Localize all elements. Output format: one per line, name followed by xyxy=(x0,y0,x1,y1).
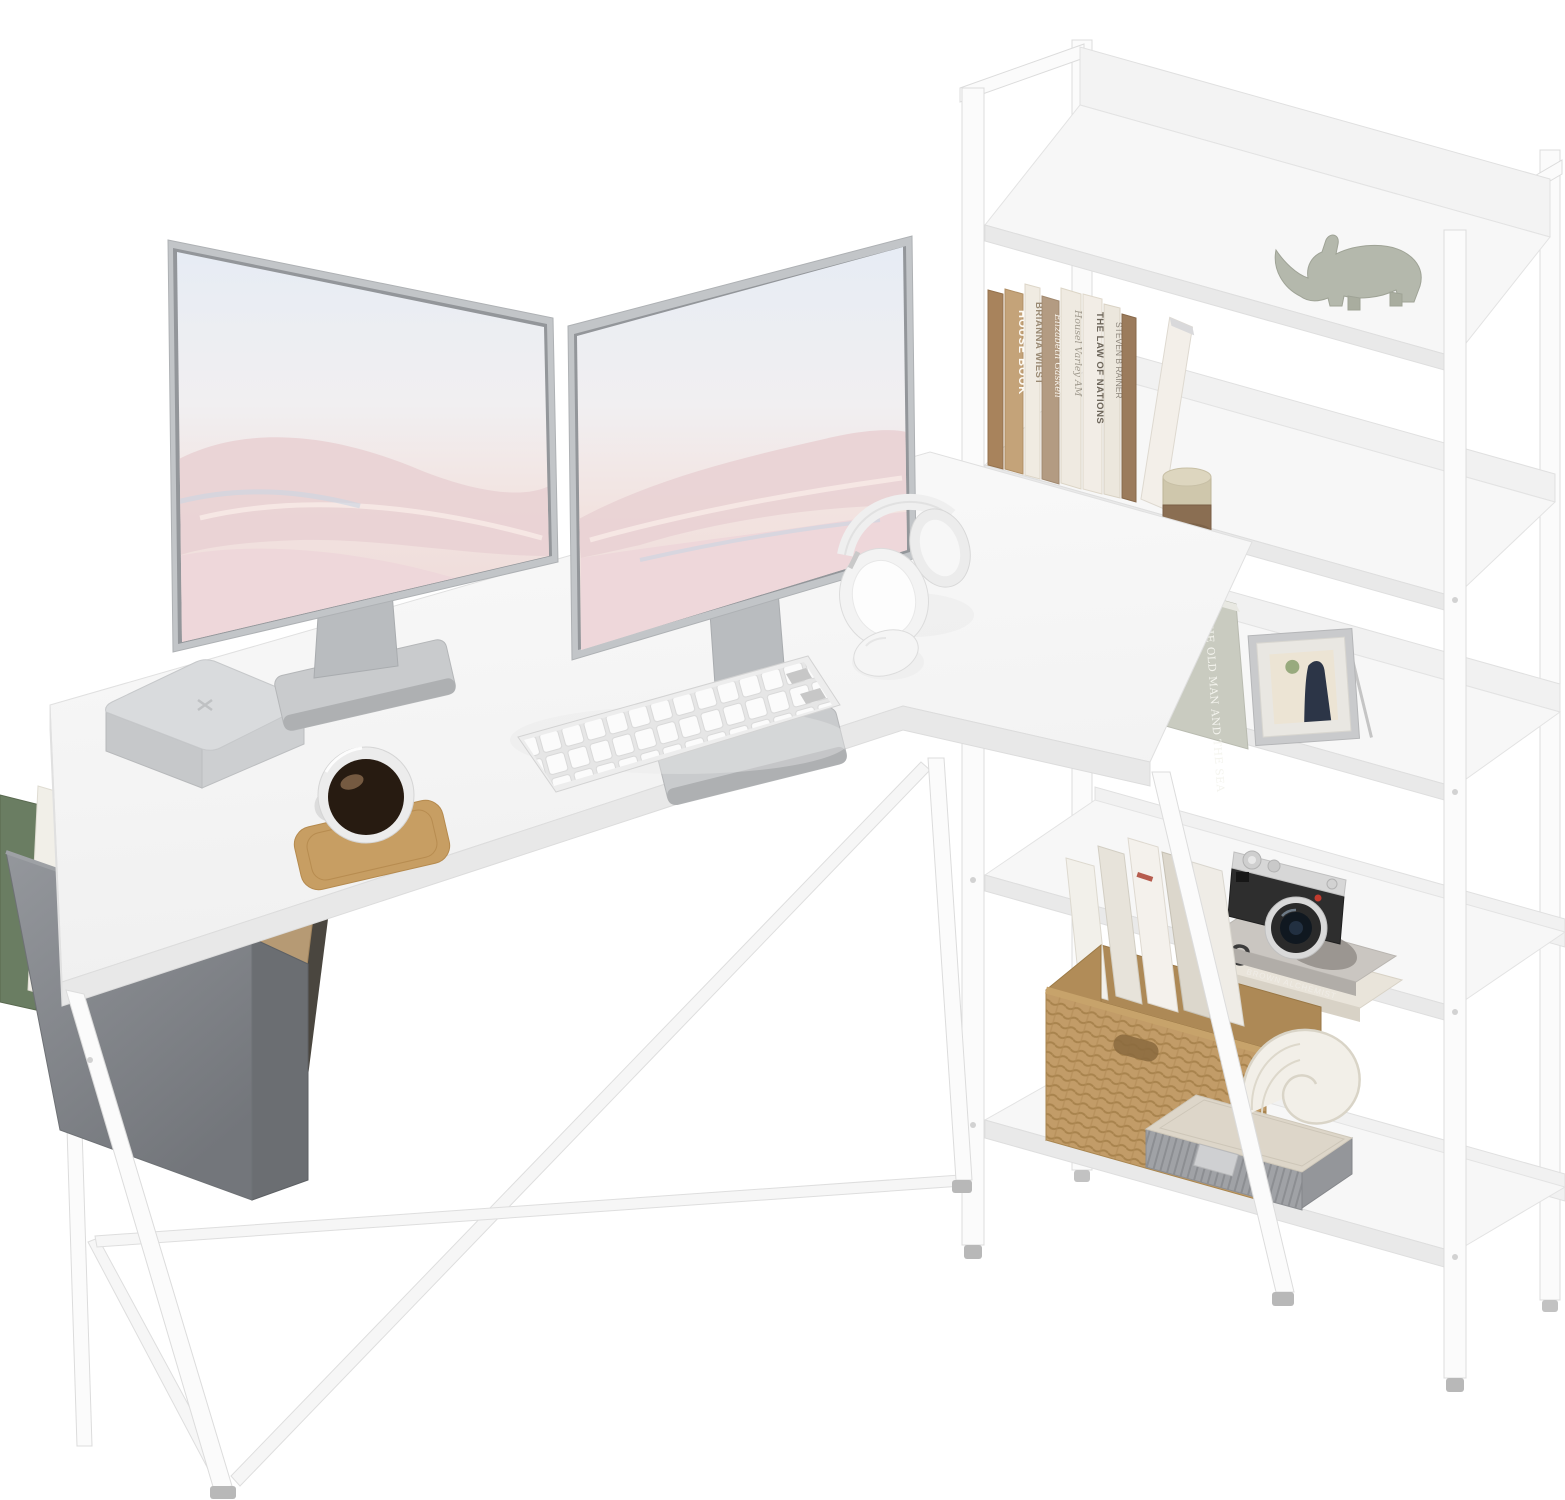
book-title: THE LAW OF NATIONS xyxy=(1094,312,1105,424)
book-spine xyxy=(988,290,1003,469)
coffee-glass xyxy=(317,747,414,843)
book-spine xyxy=(1122,314,1136,502)
book-title: Housel Varley AM xyxy=(1072,309,1083,397)
product-photo: HOUSE BOOK BRIANNA WIEST Elizabeth Gaske… xyxy=(0,0,1565,1500)
book-spine: THE LAW OF NATIONS xyxy=(1083,294,1105,494)
book-spine: Housel Varley AM xyxy=(1061,288,1083,489)
picture-frame xyxy=(1248,628,1371,746)
